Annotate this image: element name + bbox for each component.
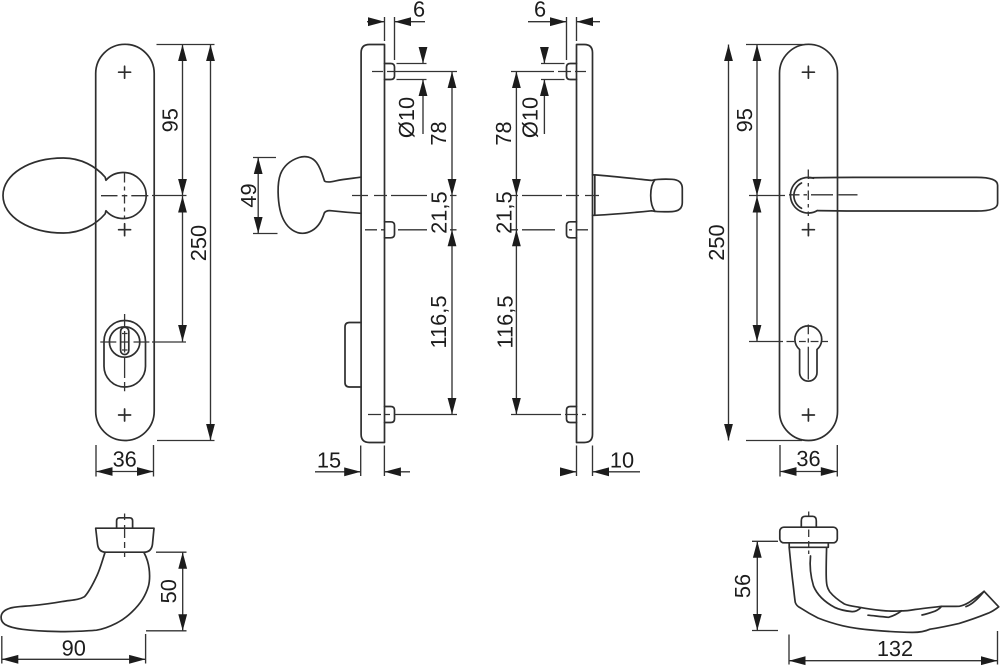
svg-text:36: 36 (113, 447, 137, 472)
svg-text:10: 10 (610, 447, 634, 472)
svg-text:116,5: 116,5 (492, 296, 517, 349)
svg-text:49: 49 (236, 183, 261, 207)
svg-text:21,5: 21,5 (491, 191, 516, 233)
svg-text:6: 6 (413, 0, 425, 22)
svg-text:132: 132 (877, 636, 913, 661)
svg-text:95: 95 (157, 108, 182, 132)
svg-text:116,5: 116,5 (426, 296, 451, 349)
svg-text:78: 78 (491, 121, 516, 145)
svg-text:6: 6 (534, 0, 546, 22)
svg-text:21,5: 21,5 (426, 191, 451, 233)
svg-text:250: 250 (186, 225, 211, 261)
svg-text:95: 95 (732, 108, 757, 132)
svg-text:Ø10: Ø10 (394, 97, 419, 138)
svg-text:Ø10: Ø10 (518, 97, 543, 138)
svg-text:56: 56 (730, 574, 755, 598)
svg-text:36: 36 (796, 446, 820, 471)
svg-text:15: 15 (317, 447, 341, 472)
svg-text:78: 78 (426, 121, 451, 145)
svg-text:50: 50 (156, 579, 181, 603)
svg-text:90: 90 (62, 635, 86, 660)
svg-text:250: 250 (704, 224, 729, 260)
